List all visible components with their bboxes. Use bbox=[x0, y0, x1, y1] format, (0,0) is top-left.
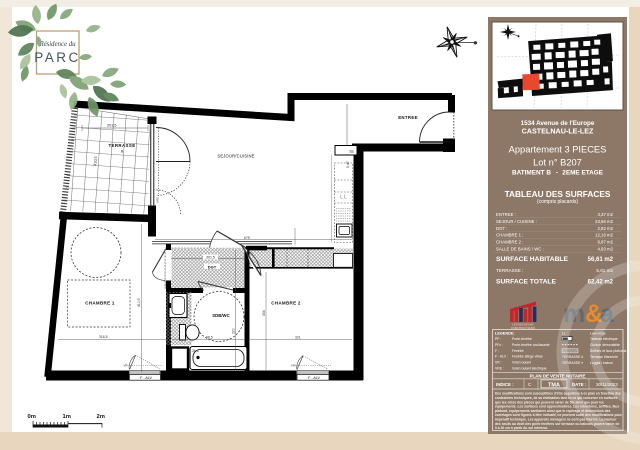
svg-text:INDICE :: INDICE : bbox=[496, 382, 514, 387]
svg-text:ENTREE :: ENTREE : bbox=[496, 212, 516, 217]
svg-text:DGT :: DGT : bbox=[496, 226, 507, 231]
svg-text:TERRASSE :: TERRASSE : bbox=[496, 268, 523, 273]
svg-text:354: 354 bbox=[262, 310, 266, 316]
svg-text:SEJOUR/CUISINE: SEJOUR/CUISINE bbox=[217, 154, 254, 159]
svg-text:98,5: 98,5 bbox=[206, 335, 213, 339]
svg-text:410,5: 410,5 bbox=[137, 298, 141, 307]
svg-text:PLAN DE VENTE NOTAIRE: PLAN DE VENTE NOTAIRE bbox=[530, 373, 586, 378]
svg-text:Volet roulant électrique: Volet roulant électrique bbox=[512, 367, 547, 371]
svg-text:(compris placards): (compris placards) bbox=[537, 199, 578, 205]
svg-text:VRE :: VRE : bbox=[495, 367, 504, 371]
svg-text:DGT: DGT bbox=[208, 264, 217, 269]
svg-text:675: 675 bbox=[244, 236, 250, 240]
svg-text:9,87 m2: 9,87 m2 bbox=[597, 240, 613, 245]
svg-text:ENTREE: ENTREE bbox=[398, 115, 418, 120]
svg-text:SURFACE TOTALE: SURFACE TOTALE bbox=[496, 279, 556, 286]
svg-text:3,37 m2: 3,37 m2 bbox=[597, 212, 613, 217]
svg-text:201,5: 201,5 bbox=[107, 124, 117, 128]
svg-text:Résidence du: Résidence du bbox=[38, 41, 76, 48]
svg-text:36,5: 36,5 bbox=[192, 349, 199, 353]
svg-text:2EME ETAGE: 2EME ETAGE bbox=[562, 170, 603, 177]
svg-text:2m: 2m bbox=[97, 414, 105, 420]
svg-text:F - ALV: F - ALV bbox=[140, 376, 152, 380]
svg-text:Porte-fenêtre: Porte-fenêtre bbox=[512, 337, 532, 341]
svg-text:LEGENDE:: LEGENDE: bbox=[495, 331, 515, 335]
svg-text:F :: F : bbox=[495, 349, 499, 353]
svg-text:B: B bbox=[121, 150, 123, 154]
svg-text:PFc :: PFc : bbox=[495, 343, 503, 347]
svg-text:Lot n° B207: Lot n° B207 bbox=[533, 158, 582, 168]
svg-text:VR :: VR : bbox=[495, 361, 502, 365]
svg-text:TABLEAU DES SURFACES: TABLEAU DES SURFACES bbox=[505, 189, 611, 199]
svg-text:F - ALV: F - ALV bbox=[308, 376, 320, 380]
svg-text:0m: 0m bbox=[28, 414, 36, 420]
svg-text:C: C bbox=[528, 382, 531, 387]
svg-text:CHAMBRE 2 :: CHAMBRE 2 : bbox=[496, 240, 523, 245]
svg-text:0 à 20 cm à partir du sol inté: 0 à 20 cm à partir du sol intérieur. bbox=[495, 426, 548, 430]
svg-text:Fenêtre allège vitrée: Fenêtre allège vitrée bbox=[512, 355, 543, 359]
svg-text:SEJOUR / CUISINE :: SEJOUR / CUISINE : bbox=[496, 219, 537, 224]
svg-text:1m: 1m bbox=[63, 414, 71, 420]
svg-text:CHAMBRE 1: CHAMBRE 1 bbox=[85, 301, 115, 306]
svg-text:F - ALV :: F - ALV : bbox=[495, 355, 508, 359]
svg-text:Appartement 3 PIECES: Appartement 3 PIECES bbox=[509, 145, 607, 155]
svg-text:BATIMENT B: BATIMENT B bbox=[512, 170, 551, 177]
svg-text:Fenêtre: Fenêtre bbox=[512, 349, 524, 353]
svg-text:4,93 m2: 4,93 m2 bbox=[597, 247, 613, 252]
svg-text:220: 220 bbox=[231, 328, 235, 334]
svg-text:VRE: VRE bbox=[156, 197, 160, 203]
svg-text:2,82 m2: 2,82 m2 bbox=[597, 226, 613, 231]
svg-text:TE: TE bbox=[349, 149, 354, 154]
svg-text:201,5: 201,5 bbox=[206, 256, 215, 260]
svg-text:PARC: PARC bbox=[34, 50, 81, 65]
svg-text:5,47: 5,47 bbox=[346, 161, 350, 168]
svg-text:SURFACE HABITABLE: SURFACE HABITABLE bbox=[496, 256, 568, 263]
svg-text:56,61 m2: 56,61 m2 bbox=[588, 257, 614, 263]
svg-text:CHAMBRE 1 :: CHAMBRE 1 : bbox=[496, 233, 523, 238]
svg-text:TERRASSE: TERRASSE bbox=[108, 143, 135, 148]
svg-text:12,16 m2: 12,16 m2 bbox=[595, 233, 614, 238]
svg-text:TMA: TMA bbox=[548, 382, 560, 388]
svg-text:CHAMBRE 2: CHAMBRE 2 bbox=[271, 301, 301, 306]
svg-text:Porte-fenêtre coulissante: Porte-fenêtre coulissante bbox=[512, 343, 550, 347]
svg-text:-: - bbox=[556, 170, 558, 177]
svg-text:PF :: PF : bbox=[495, 337, 501, 341]
svg-text:VR: VR bbox=[291, 364, 295, 368]
svg-text:LL: LL bbox=[340, 195, 348, 201]
svg-text:SALLE DE BAINS / WC :: SALLE DE BAINS / WC : bbox=[496, 247, 544, 252]
svg-text:CASTELNAU-LE-LEZ: CASTELNAU-LE-LEZ bbox=[522, 127, 594, 136]
svg-text:23,66 m2: 23,66 m2 bbox=[595, 219, 614, 224]
svg-text:Volet roulant: Volet roulant bbox=[512, 361, 531, 365]
svg-text:321: 321 bbox=[295, 335, 301, 339]
svg-text:SDB/WC: SDB/WC bbox=[212, 313, 229, 318]
svg-text:316,5: 316,5 bbox=[99, 335, 108, 339]
svg-text:VR: VR bbox=[124, 364, 128, 368]
